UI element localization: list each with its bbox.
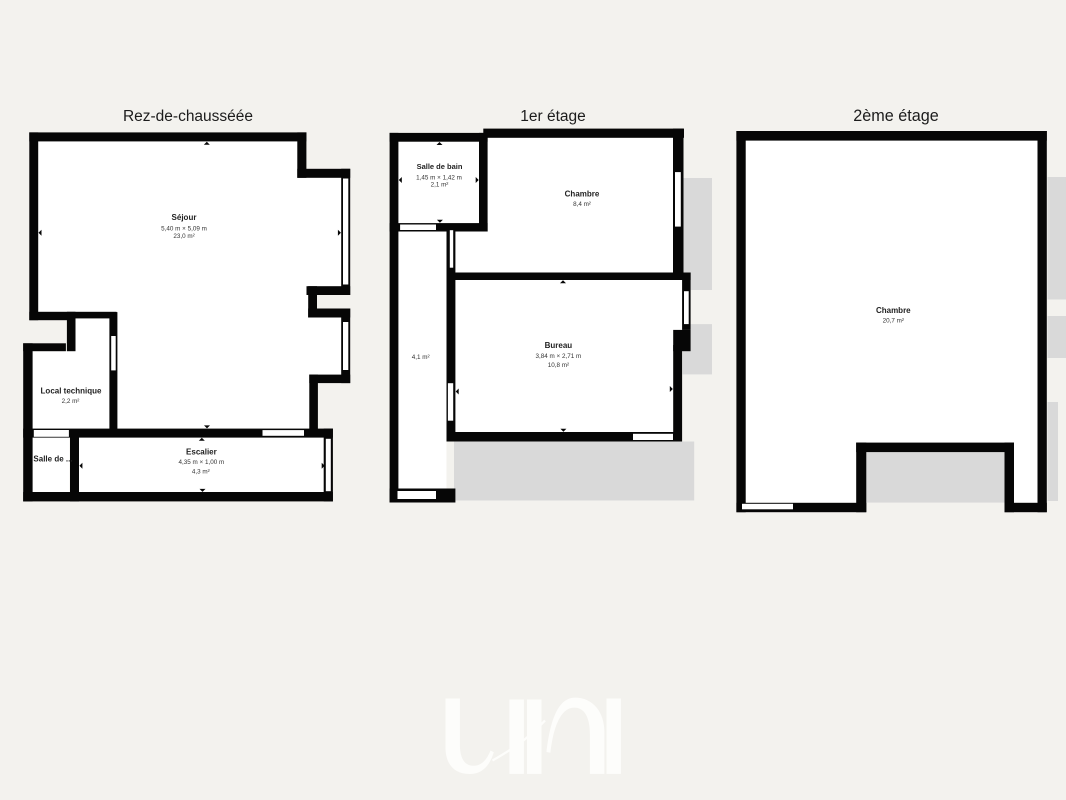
svg-text:Salle de bain: Salle de bain: [417, 162, 463, 171]
svg-text:10,8 m²: 10,8 m²: [548, 362, 569, 369]
svg-text:3,84 m × 2,71 m: 3,84 m × 2,71 m: [536, 353, 582, 360]
svg-text:Séjour: Séjour: [172, 213, 197, 222]
svg-text:2,2 m²: 2,2 m²: [62, 398, 80, 405]
svg-text:4,35 m × 1,00 m: 4,35 m × 1,00 m: [179, 459, 225, 466]
svg-text:Chambre: Chambre: [876, 306, 911, 315]
svg-text:5,40 m × 5,09 m: 5,40 m × 5,09 m: [161, 226, 207, 233]
svg-text:4,1 m²: 4,1 m²: [412, 354, 430, 361]
svg-text:Rez-de-chausséée: Rez-de-chausséée: [123, 108, 253, 125]
svg-text:2ème étage: 2ème étage: [853, 107, 939, 125]
svg-text:20,7 m²: 20,7 m²: [883, 317, 904, 324]
svg-text:4,3 m²: 4,3 m²: [192, 469, 210, 476]
svg-text:23,0 m²: 23,0 m²: [173, 233, 194, 240]
svg-text:Local technique: Local technique: [41, 387, 102, 396]
svg-text:Escalier: Escalier: [186, 447, 217, 456]
svg-text:Chambre: Chambre: [565, 190, 600, 199]
svg-text:2,1 m²: 2,1 m²: [431, 181, 449, 188]
svg-text:Salle de ...: Salle de ...: [33, 455, 72, 464]
svg-text:8,4 m²: 8,4 m²: [573, 201, 591, 208]
svg-text:Bureau: Bureau: [545, 341, 573, 350]
svg-text:1er étage: 1er étage: [520, 108, 586, 125]
